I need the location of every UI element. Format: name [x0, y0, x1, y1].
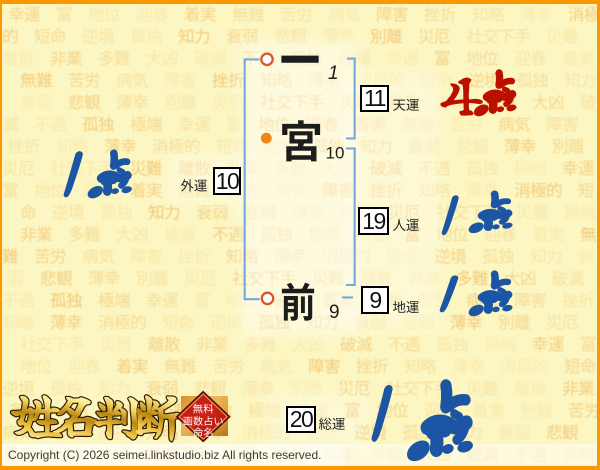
- svg-text:9: 9: [329, 302, 340, 323]
- svg-text:10: 10: [326, 144, 345, 163]
- svg-text:1: 1: [328, 63, 339, 84]
